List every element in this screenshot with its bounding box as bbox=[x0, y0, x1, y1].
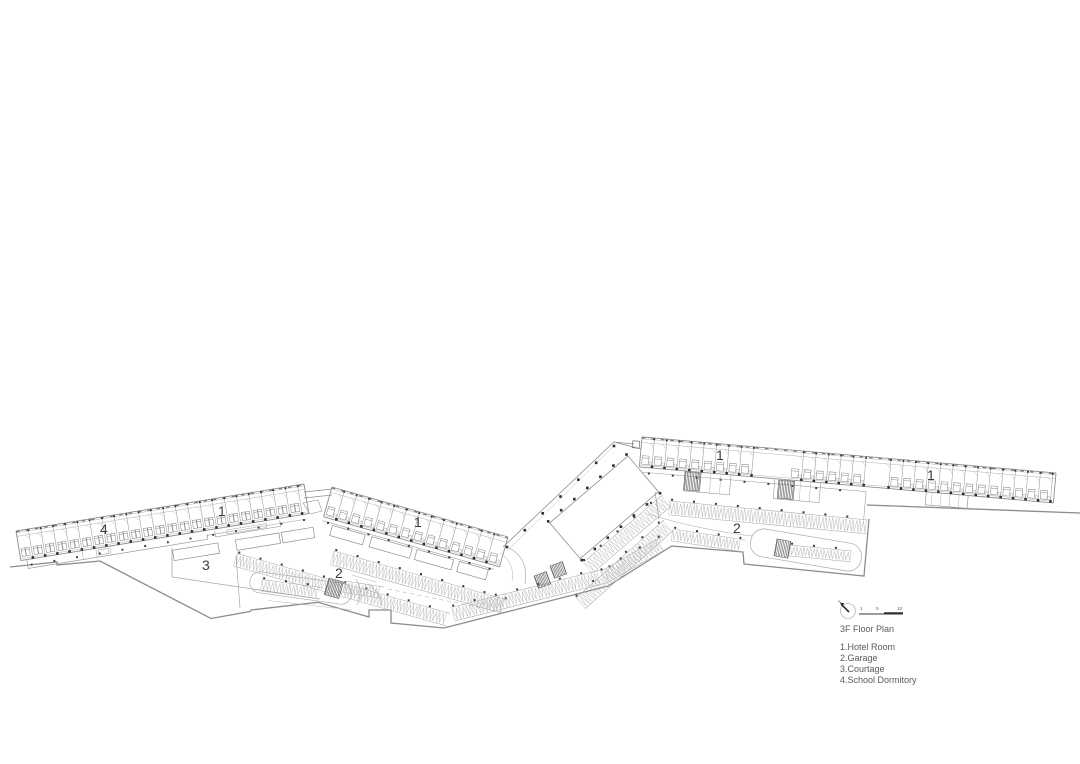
svg-text:1: 1 bbox=[927, 467, 935, 483]
svg-text:1: 1 bbox=[860, 606, 863, 612]
svg-text:1: 1 bbox=[218, 503, 226, 519]
svg-text:5: 5 bbox=[876, 606, 879, 612]
svg-text:4.School Dormitory: 4.School Dormitory bbox=[840, 675, 917, 685]
svg-text:1: 1 bbox=[716, 447, 724, 463]
svg-text:2: 2 bbox=[733, 520, 741, 536]
svg-text:10: 10 bbox=[897, 606, 903, 612]
svg-text:3: 3 bbox=[202, 557, 210, 573]
svg-text:1.Hotel Room: 1.Hotel Room bbox=[840, 642, 895, 652]
svg-text:1: 1 bbox=[414, 514, 422, 530]
svg-text:4: 4 bbox=[100, 521, 108, 537]
svg-text:3.Courtage: 3.Courtage bbox=[840, 664, 885, 674]
svg-text:2: 2 bbox=[335, 565, 343, 581]
svg-text:2.Garage: 2.Garage bbox=[840, 653, 878, 663]
svg-text:3F Floor Plan: 3F Floor Plan bbox=[840, 624, 894, 634]
